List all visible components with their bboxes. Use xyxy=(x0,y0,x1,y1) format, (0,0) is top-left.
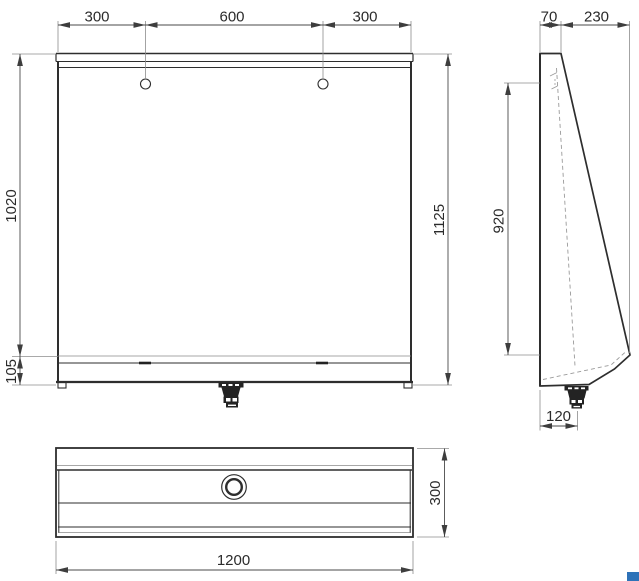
side-view-outline xyxy=(540,54,630,387)
plan-view-outline xyxy=(56,448,413,537)
dim-front-total-height: 1125 xyxy=(431,54,448,385)
dim-side-basin-height: 920 xyxy=(491,83,509,355)
side-drain-fitting xyxy=(565,386,589,409)
front-view xyxy=(56,54,413,408)
dim-label: 120 xyxy=(546,408,571,425)
dim-front-hole-offset-left: 300 xyxy=(58,9,146,26)
dim-side-drain-offset: 120 xyxy=(540,408,578,426)
dim-label: 105 xyxy=(3,359,20,384)
dim-label: 1200 xyxy=(217,552,250,569)
dim-plan-depth: 300 xyxy=(427,449,445,538)
technical-drawing: 300 600 300 1020 105 1125 70 230 920 120… xyxy=(0,0,639,581)
dim-front-skirt-height: 105 xyxy=(3,357,20,386)
mounting-hole-left xyxy=(141,79,151,89)
dim-front-panel-height: 1020 xyxy=(3,54,20,357)
plan-view xyxy=(56,448,413,537)
front-drain-fitting xyxy=(219,383,244,408)
dim-front-hole-spacing: 600 xyxy=(146,9,324,26)
mounting-hole-right xyxy=(318,79,328,89)
front-view-outline xyxy=(56,54,413,389)
dim-label: 70 xyxy=(541,9,558,26)
dim-plan-width: 1200 xyxy=(56,552,413,570)
dim-label: 1125 xyxy=(431,204,448,236)
dim-label: 1020 xyxy=(3,189,20,222)
side-view xyxy=(540,54,630,409)
dim-label: 300 xyxy=(427,480,444,505)
foot-right xyxy=(404,383,412,389)
drawing-canvas: 300 600 300 1020 105 1125 70 230 920 120… xyxy=(0,0,639,581)
drain-inner-ring xyxy=(226,479,242,495)
dim-label: 920 xyxy=(491,208,508,233)
dim-label: 300 xyxy=(352,9,377,26)
corner-accent-square xyxy=(627,572,639,581)
dim-front-hole-offset-right: 300 xyxy=(323,9,411,26)
dim-label: 230 xyxy=(584,9,609,26)
foot-left xyxy=(58,383,66,389)
dim-label: 600 xyxy=(219,9,244,26)
dim-side-top-depth: 70 xyxy=(540,9,561,26)
extension-lines xyxy=(12,21,630,574)
dim-label: 300 xyxy=(84,9,109,26)
dim-side-slope-depth: 230 xyxy=(561,9,630,26)
